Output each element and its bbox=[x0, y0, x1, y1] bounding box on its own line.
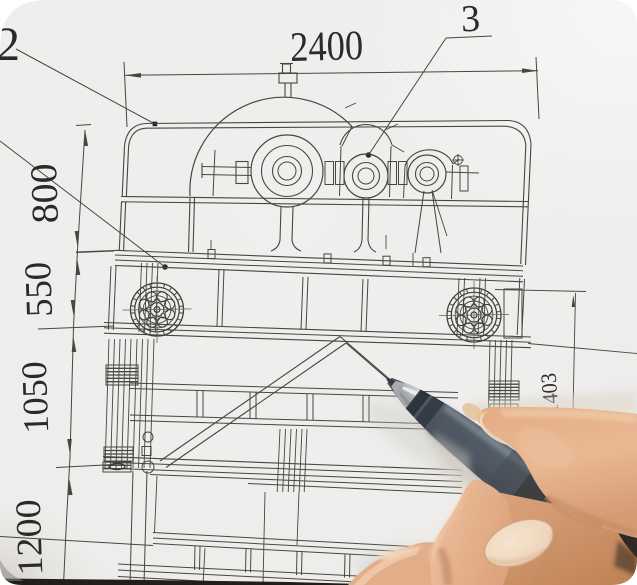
svg-text:1050: 1050 bbox=[14, 361, 56, 434]
svg-text:2400: 2400 bbox=[290, 23, 364, 71]
svg-text:3: 3 bbox=[460, 0, 480, 40]
svg-text:2: 2 bbox=[0, 18, 20, 71]
svg-text:800: 800 bbox=[23, 163, 67, 224]
svg-text:550: 550 bbox=[17, 261, 61, 317]
